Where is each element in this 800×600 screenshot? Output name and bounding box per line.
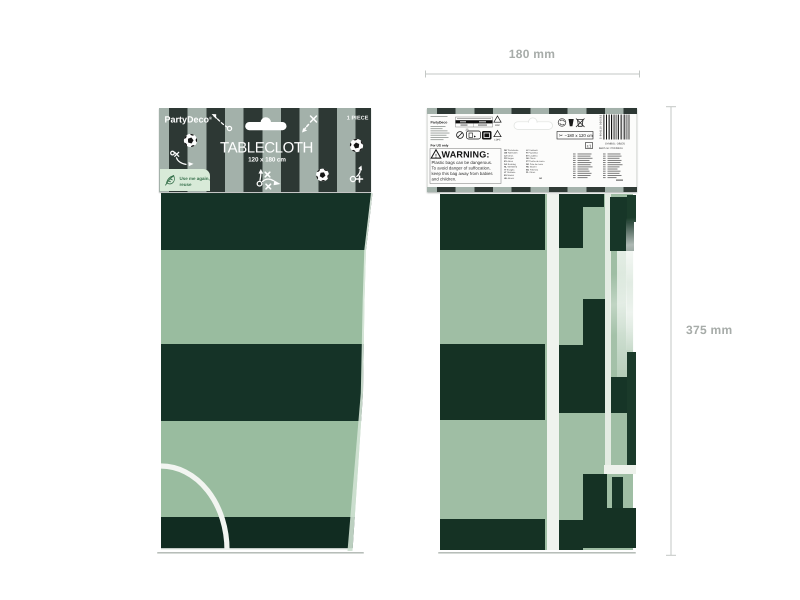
svg-text:NL Tafelkleed: NL Tafelkleed bbox=[504, 165, 518, 168]
svg-text:To avoid danger of suffocation: To avoid danger of suffocation, bbox=[432, 165, 491, 170]
svg-text:±1: ±1 bbox=[587, 143, 592, 148]
svg-text:CZ Ubrus: CZ Ubrus bbox=[504, 154, 513, 157]
svg-text:DE Tischdecke: DE Tischdecke bbox=[504, 148, 519, 151]
svg-text:!: ! bbox=[435, 153, 437, 159]
svg-text:PT Toalha de mesa: PT Toalha de mesa bbox=[526, 160, 545, 163]
svg-text:IT Tovaglia: IT Tovaglia bbox=[504, 168, 515, 171]
svg-text:▸: ▸ bbox=[474, 133, 476, 138]
svg-text:BY Abrus: BY Abrus bbox=[504, 160, 513, 163]
svg-text:PL Obrus: PL Obrus bbox=[526, 171, 535, 174]
svg-text:120 x 180 cm: 120 x 180 cm bbox=[248, 156, 286, 163]
svg-text:✂: ✂ bbox=[559, 133, 563, 138]
svg-text:PartyDeco: PartyDeco bbox=[431, 120, 448, 124]
svg-text:AR: AR bbox=[539, 176, 543, 179]
svg-text:LDPE: LDPE bbox=[494, 138, 501, 141]
svg-text:LT Staltiese: LT Staltiese bbox=[504, 171, 516, 174]
svg-text:WARNING:: WARNING: bbox=[442, 149, 490, 159]
svg-text:and children.: and children. bbox=[432, 176, 457, 181]
svg-text:For US only: For US only bbox=[431, 143, 449, 147]
svg-text:LV Galdauts: LV Galdauts bbox=[526, 148, 538, 151]
svg-text:HU Abrosz: HU Abrosz bbox=[504, 176, 514, 179]
svg-text:5 904110 050562: 5 904110 050562 bbox=[600, 114, 603, 139]
svg-text:RO Fata de masa: RO Fata de masa bbox=[526, 162, 544, 165]
svg-text:TABLECLOTH: TABLECLOTH bbox=[220, 139, 313, 156]
svg-text:ES Mantel: ES Mantel bbox=[504, 174, 514, 177]
svg-text:~180 x 120 cm: ~180 x 120 cm bbox=[565, 133, 594, 138]
svg-text:SYMBOL: OBSZ6: SYMBOL: OBSZ6 bbox=[605, 142, 626, 145]
svg-text:FR Nappe: FR Nappe bbox=[504, 157, 515, 160]
svg-text:PAP: PAP bbox=[495, 123, 500, 126]
svg-text:1 PIECE: 1 PIECE bbox=[346, 115, 368, 121]
svg-text:GB Tablecloth: GB Tablecloth bbox=[504, 151, 518, 154]
svg-text:Batch no: 22/0456/16: Batch no: 22/0456/16 bbox=[599, 147, 623, 150]
svg-text:keep this bag away from babies: keep this bag away from babies bbox=[432, 171, 494, 176]
svg-text:ET Laudlina: ET Laudlina bbox=[526, 154, 538, 157]
svg-text:DA Borddug: DA Borddug bbox=[504, 162, 517, 165]
svg-text:Plastic bags can be dangerous.: Plastic bags can be dangerous. bbox=[432, 160, 493, 165]
svg-text:PartyDeco®: PartyDeco® bbox=[164, 114, 212, 124]
svg-text:BG Pokrivka: BG Pokrivka bbox=[526, 168, 539, 171]
svg-text:SK Obrus: SK Obrus bbox=[526, 157, 535, 160]
svg-text:RU Skatert: RU Skatert bbox=[526, 165, 537, 168]
svg-text:FI Poytaliina: FI Poytaliina bbox=[526, 151, 539, 154]
